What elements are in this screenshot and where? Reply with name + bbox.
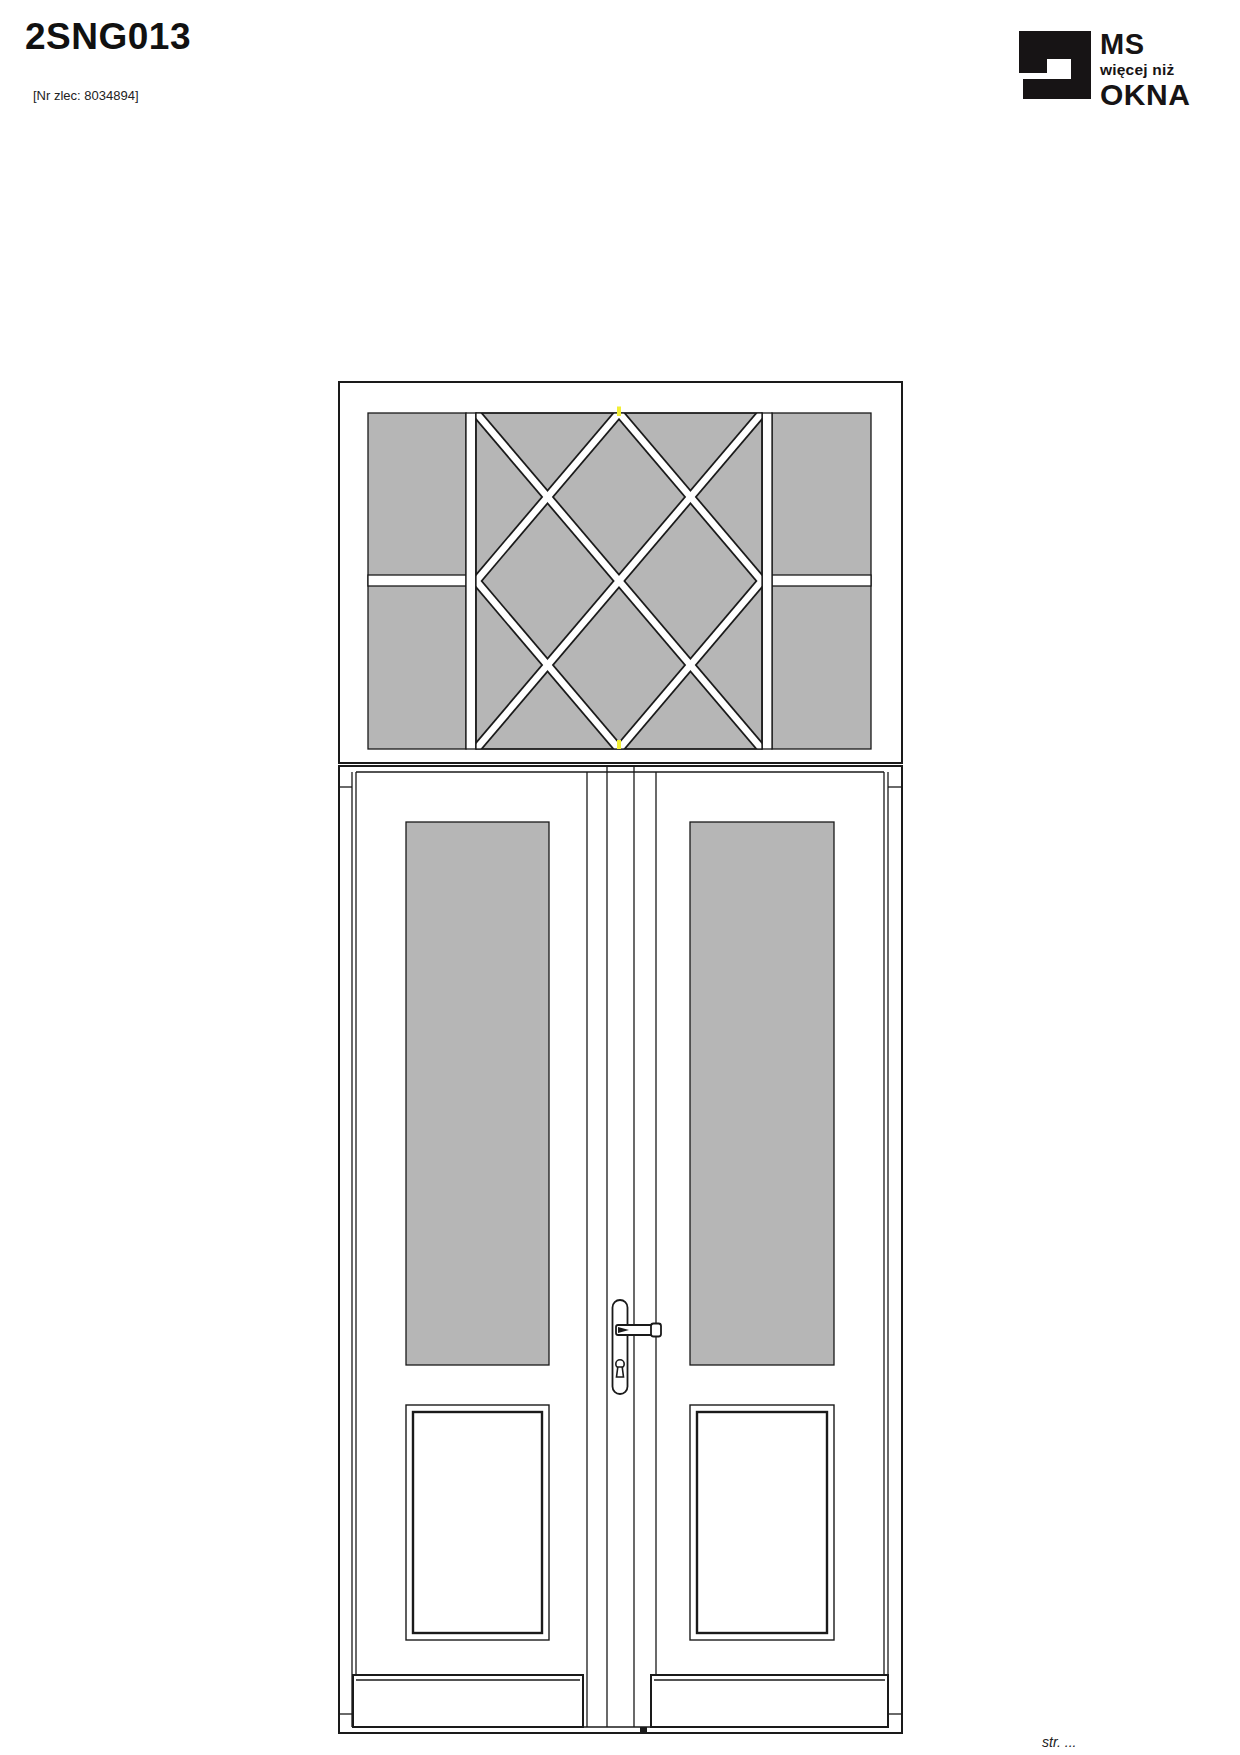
page-number-label: str. ... bbox=[1042, 1734, 1076, 1750]
company-logo: MS więcej niż OKNA bbox=[1019, 30, 1190, 110]
door-panel-left bbox=[406, 1405, 549, 1640]
handle-lever-cap bbox=[651, 1324, 661, 1337]
join-marker-top bbox=[617, 407, 621, 417]
keyhole bbox=[616, 1360, 624, 1377]
handle-backplate bbox=[613, 1300, 628, 1394]
ms-logo-mark-icon bbox=[1019, 30, 1091, 100]
page-title: 2SNG013 bbox=[25, 16, 191, 58]
logo-text: MS więcej niż OKNA bbox=[1100, 30, 1190, 110]
logo-line-3: OKNA bbox=[1100, 80, 1190, 110]
transom-sash-stile-right bbox=[762, 413, 772, 749]
kick-rail-right bbox=[651, 1675, 888, 1727]
transom-muntin-right bbox=[772, 575, 871, 586]
logo-line-2: więcej niż bbox=[1100, 62, 1190, 78]
kick-rail-left bbox=[353, 1675, 583, 1727]
door-glass-right bbox=[690, 822, 834, 1365]
door-elevation-drawing bbox=[330, 375, 910, 1741]
double-door bbox=[339, 766, 902, 1733]
transom-window bbox=[339, 382, 902, 768]
join-marker-bottom bbox=[617, 740, 621, 749]
logo-line-1: MS bbox=[1100, 30, 1190, 59]
threshold-mark bbox=[640, 1727, 647, 1732]
door-panel-right bbox=[690, 1405, 834, 1640]
order-number: [Nr zlec: 8034894] bbox=[33, 88, 139, 103]
door-glass-left bbox=[406, 822, 549, 1365]
transom-muntin-left bbox=[368, 575, 466, 586]
transom-sash-stile-left bbox=[466, 413, 476, 749]
document-page: 2SNG013 [Nr zlec: 8034894] MS więcej niż… bbox=[0, 0, 1240, 1755]
